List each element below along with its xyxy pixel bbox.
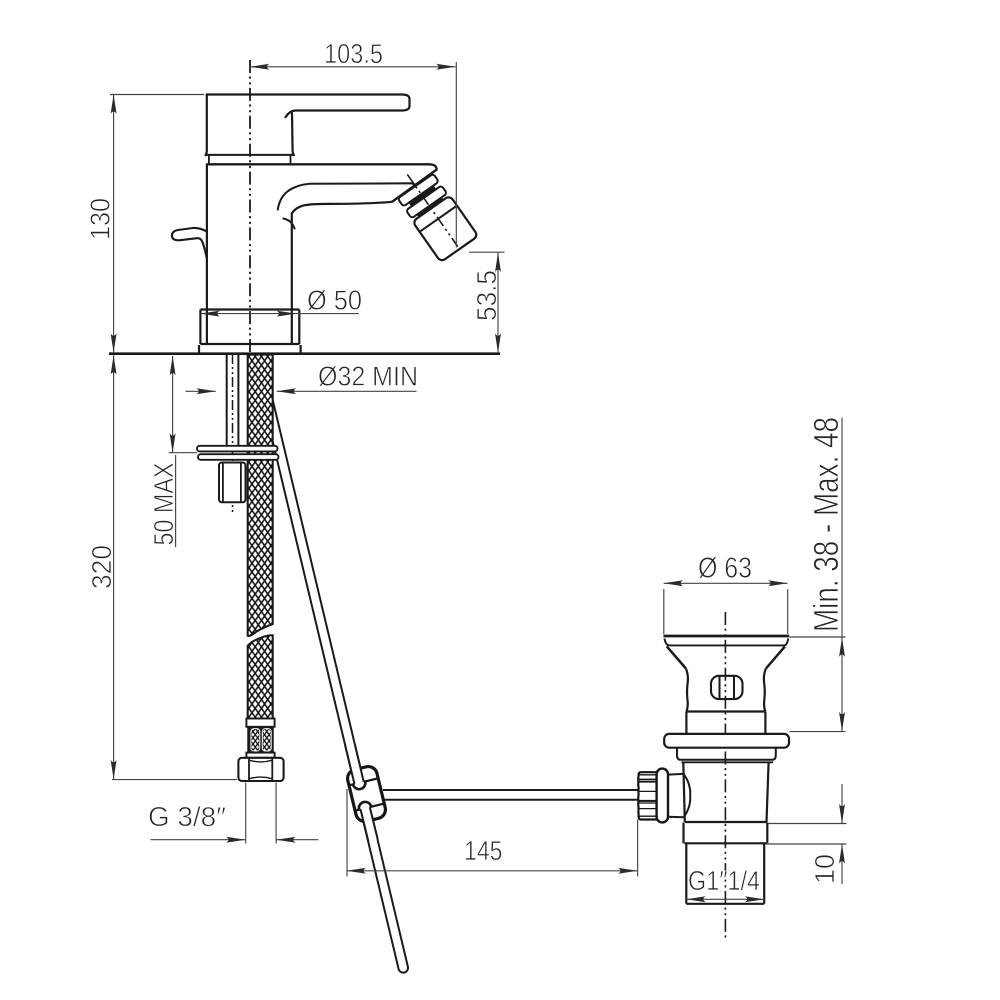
svg-text:10: 10 bbox=[809, 854, 840, 884]
svg-text:50 MAX: 50 MAX bbox=[148, 463, 179, 546]
svg-text:Ø 50: Ø 50 bbox=[307, 285, 362, 316]
svg-text:320: 320 bbox=[86, 545, 117, 589]
svg-text:G1″1/4: G1″1/4 bbox=[688, 865, 760, 896]
svg-text:103.5: 103.5 bbox=[324, 38, 383, 69]
svg-text:Ø 63: Ø 63 bbox=[698, 553, 752, 585]
svg-text:Min. 38 - Max. 48: Min. 38 - Max. 48 bbox=[807, 417, 846, 632]
svg-text:145: 145 bbox=[464, 835, 503, 866]
svg-text:Ø32 MIN: Ø32 MIN bbox=[318, 361, 418, 392]
svg-text:130: 130 bbox=[85, 198, 116, 240]
svg-text:G 3/8″: G 3/8″ bbox=[148, 801, 226, 832]
svg-text:53.5: 53.5 bbox=[471, 270, 502, 321]
